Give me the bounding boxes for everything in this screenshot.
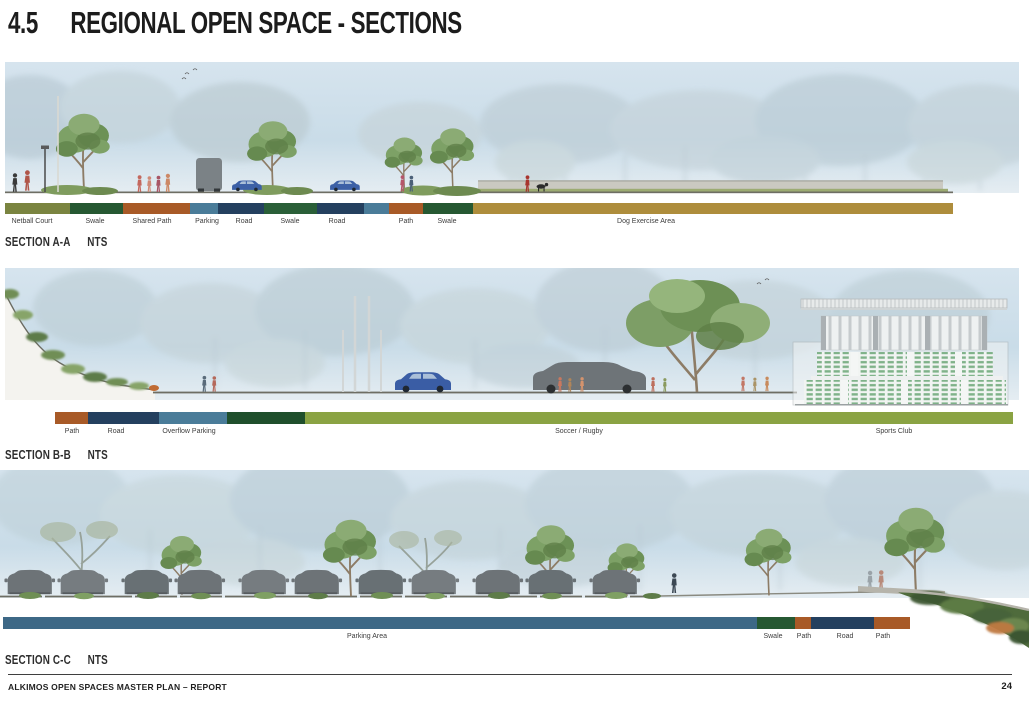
bar-segment [389,203,423,214]
bar-segment [874,617,910,629]
ground-line [153,392,797,394]
section-a-scale: NTS [87,234,107,249]
bar-segment [159,412,227,424]
bar-segment-label: Swale [763,633,782,640]
land-use-bar-b: PathRoadOverflow ParkingSoccer / RugbySp… [0,412,1029,442]
bar-segment-label: Overflow Parking [162,428,215,435]
report-page: 4.5REGIONAL OPEN SPACE - SECTIONS [0,0,1029,702]
bar-segment-label: Path [797,633,811,640]
bar-segment-label: Road [329,218,346,225]
section-b-illustration [5,268,1019,408]
bar-segment-label: Sports Club [876,428,913,435]
section-b-scale: NTS [88,447,108,462]
land-use-bar-a: Netball CourtSwaleShared PathParkingRoad… [0,203,1029,232]
bar-segment-label: Swale [437,218,456,225]
bar-segment-label: Road [837,633,854,640]
bar-segment [305,412,1013,424]
section-heading-c: SECTION C-CNTS [5,652,108,667]
footer-rule [8,674,1012,675]
bar-segment [795,617,811,629]
bar-segment [218,203,264,214]
land-use-bar-c: Parking AreaSwalePathRoadPath [0,617,1029,647]
section-a-name: SECTION A-A [5,234,71,249]
bar-segment [88,412,159,424]
page-title: 4.5REGIONAL OPEN SPACE - SECTIONS [8,5,462,41]
bar-segment-label: Dog Exercise Area [617,218,675,225]
bar-segment [123,203,190,214]
bar-segment [3,617,757,629]
dog-area-wall [478,180,948,191]
section-c-name: SECTION C-C [5,652,71,667]
bar-segment-label: Shared Path [133,218,172,225]
bar-segment [5,203,70,214]
section-heading-b: SECTION B-BNTS [5,447,108,462]
bar-segment [317,203,364,214]
page-title-text: REGIONAL OPEN SPACE - SECTIONS [70,5,461,41]
bar-segment [190,203,218,214]
page-number: 24 [8,681,1012,692]
bar-segment [364,203,389,214]
bar-segment [70,203,123,214]
bar-segment-label: Road [108,428,125,435]
section-b-name: SECTION B-B [5,447,71,462]
bar-segment-label: Parking Area [347,633,387,640]
bar-segment-label: Soccer / Rugby [555,428,603,435]
bar-segment-label: Path [65,428,79,435]
bar-segment [227,412,305,424]
section-c-scale: NTS [88,652,108,667]
section-heading-a: SECTION A-ANTS [5,234,107,249]
bar-segment [811,617,874,629]
section-a-illustration [5,62,1019,198]
bar-segment [264,203,317,214]
bar-segment-label: Path [399,218,413,225]
bar-segment-label: Netball Court [12,218,53,225]
bar-segment [55,412,88,424]
section-number: 4.5 [8,5,38,41]
bar-segment-label: Path [876,633,890,640]
bar-segment [757,617,795,629]
bar-segment-label: Road [236,218,253,225]
bar-segment-label: Swale [280,218,299,225]
bar-segment-label: Parking [195,218,219,225]
bar-segment [473,203,953,214]
bar-segment-label: Swale [85,218,104,225]
bar-segment [423,203,473,214]
